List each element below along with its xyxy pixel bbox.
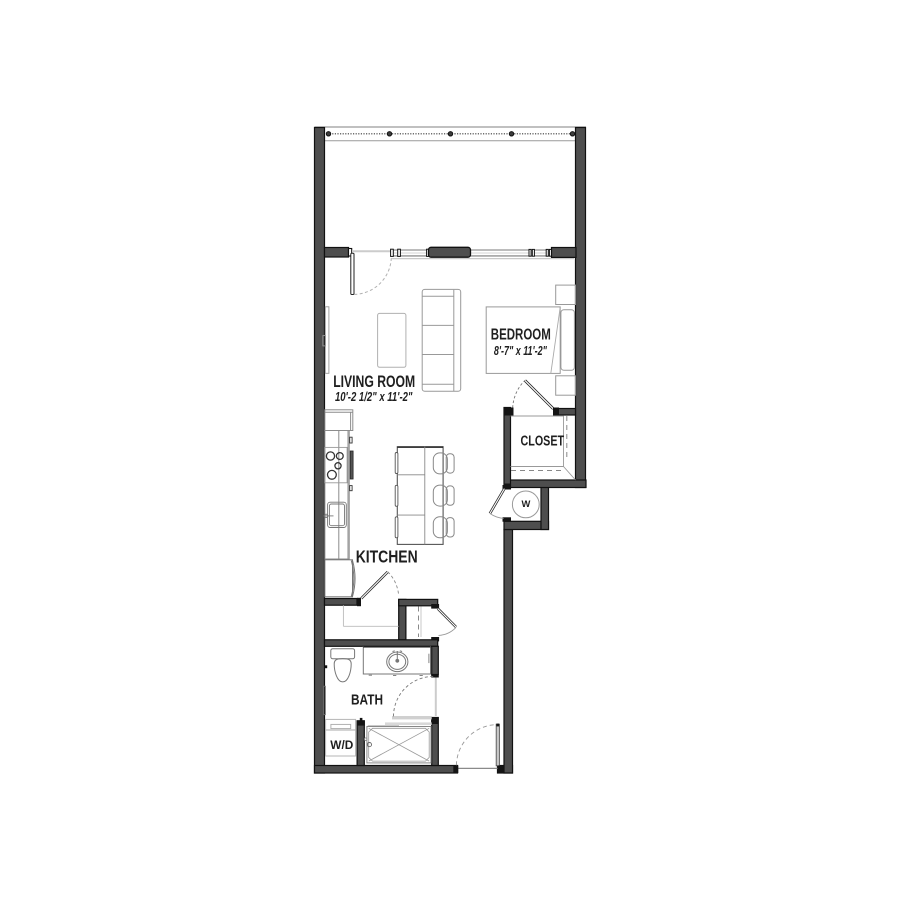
svg-text:8'-7" x 11'-2": 8'-7" x 11'-2" bbox=[494, 344, 548, 358]
svg-text:BATH: BATH bbox=[351, 691, 383, 708]
svg-text:W/D: W/D bbox=[330, 738, 353, 752]
svg-text:BEDROOM: BEDROOM bbox=[491, 327, 551, 344]
svg-text:CLOSET: CLOSET bbox=[521, 433, 565, 449]
svg-text:W: W bbox=[521, 498, 530, 509]
svg-text:LIVING ROOM: LIVING ROOM bbox=[333, 373, 415, 391]
svg-text:10'-2 1/2" x 11'-2": 10'-2 1/2" x 11'-2" bbox=[335, 390, 413, 404]
svg-text:KITCHEN: KITCHEN bbox=[356, 547, 418, 567]
